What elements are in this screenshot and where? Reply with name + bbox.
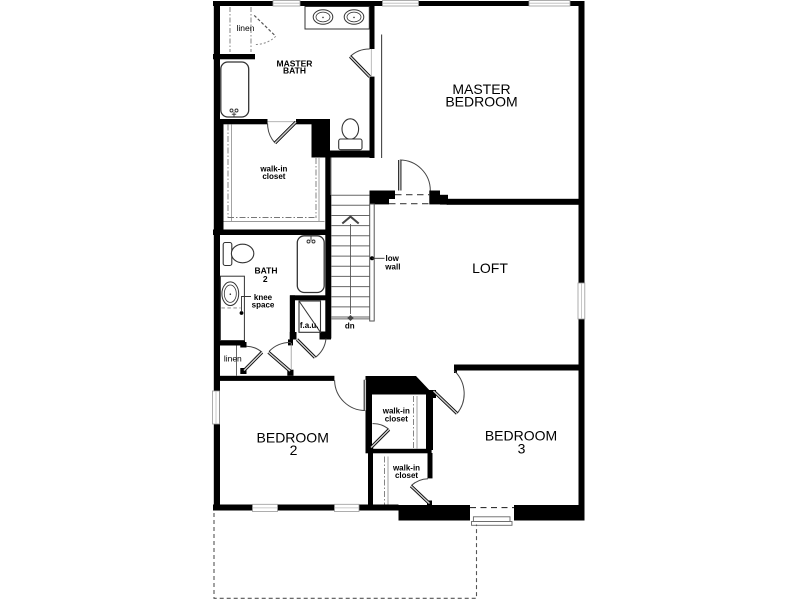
svg-text:LOFT: LOFT	[472, 260, 508, 276]
svg-text:closet: closet	[395, 471, 418, 480]
svg-text:2: 2	[290, 442, 298, 458]
svg-text:f.a.u.: f.a.u.	[300, 321, 319, 330]
svg-text:linen: linen	[237, 23, 255, 33]
svg-text:wall: wall	[384, 262, 400, 271]
svg-text:3: 3	[518, 441, 526, 457]
svg-text:BEDROOM: BEDROOM	[445, 93, 517, 109]
svg-text:space: space	[252, 300, 275, 309]
svg-text:closet: closet	[262, 172, 285, 181]
svg-text:dn: dn	[345, 321, 355, 330]
svg-text:linen: linen	[224, 353, 242, 363]
svg-text:BATH: BATH	[283, 66, 306, 76]
svg-text:closet: closet	[385, 414, 408, 423]
svg-text:2: 2	[263, 274, 268, 284]
